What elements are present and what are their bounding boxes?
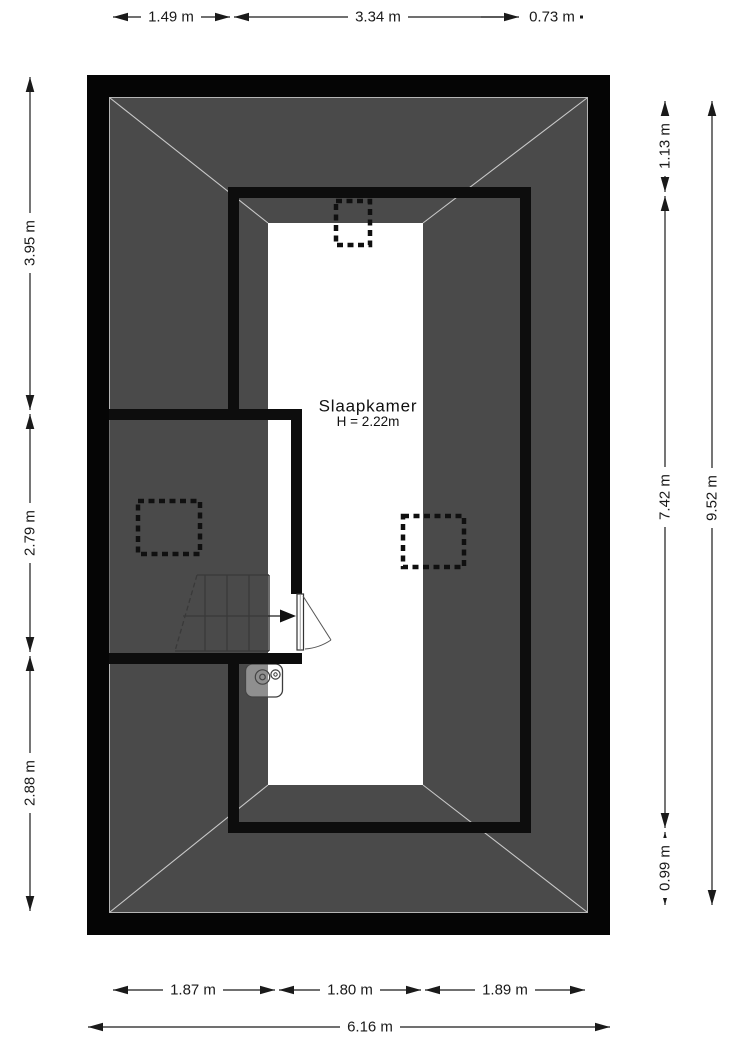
dimension-label: 1.80 m (327, 982, 373, 999)
dim-top-row: 1.49 m 3.34 m 0.73 m (113, 9, 583, 26)
dimension-arrow-icon (661, 813, 670, 828)
door-jamb (291, 585, 302, 594)
dim-left-column: 3.95 m 2.79 m 2.88 m (22, 77, 39, 911)
landing-wall-right (291, 420, 302, 585)
dimension-arrow-icon (26, 77, 35, 92)
floor-plan-page: Slaapkamer H = 2.22m 1.49 m 3.34 m 0.73 … (0, 0, 743, 1050)
dimension-tick (580, 16, 583, 19)
bedroom-wall-top (228, 187, 531, 198)
dimension-arrow-icon (570, 986, 585, 995)
boiler-pipe-icon (271, 670, 280, 679)
dimension-label: 3.95 m (22, 220, 39, 266)
room-name-label: Slaapkamer (319, 397, 418, 416)
dimension-label: 0.73 m (529, 9, 575, 26)
dim-bottom-rows: 1.87 m 1.80 m 1.89 m 6.16 m (88, 982, 610, 1036)
dimension-arrow-icon (215, 13, 230, 22)
dimension-arrow-icon (26, 414, 35, 429)
bedroom-wall-left-upper (228, 187, 239, 420)
dimension-label: 3.34 m (355, 9, 401, 26)
dimension-label: 1.49 m (148, 9, 194, 26)
dimension-arrow-icon (595, 1023, 610, 1032)
dimension-arrow-icon (661, 177, 670, 192)
bedroom-wall-bottom (228, 822, 531, 833)
dimension-label: 1.87 m (170, 982, 216, 999)
bedroom-wall-left-lower (228, 658, 239, 833)
dimension-arrow-icon (88, 1023, 103, 1032)
dimension-arrow-icon (26, 637, 35, 652)
bedroom-wall-right (520, 187, 531, 833)
dimension-label: 0.99 m (657, 845, 674, 891)
dimension-arrow-icon (661, 196, 670, 211)
dimension-label: 2.79 m (22, 510, 39, 556)
dim-right-columns: 1.13 m 7.42 m 0.99 m 9.52 m (657, 101, 721, 905)
dimension-arrow-icon (406, 986, 421, 995)
dimension-label: 7.42 m (657, 474, 674, 520)
dimension-label: 1.13 m (657, 123, 674, 169)
dimension-arrow-icon (504, 13, 519, 22)
room-height-label: H = 2.22m (337, 414, 400, 429)
landing-wall-bottom (109, 653, 302, 664)
dimension-arrow-icon (26, 395, 35, 410)
dimension-arrow-icon (708, 101, 717, 116)
landing-wall-top (109, 409, 302, 420)
dimension-arrow-icon (661, 101, 670, 116)
roof-slope-overlay (239, 664, 268, 702)
floor-plan: Slaapkamer H = 2.22m 1.49 m 3.34 m 0.73 … (0, 0, 743, 1050)
dimension-arrow-icon (279, 986, 294, 995)
dimension-arrow-icon (260, 986, 275, 995)
dimension-label: 9.52 m (704, 475, 721, 521)
dimension-arrow-icon (113, 13, 128, 22)
dimension-arrow-icon (234, 13, 249, 22)
dimension-label: 6.16 m (347, 1019, 393, 1036)
roof-slope-overlay (109, 420, 268, 653)
dimension-arrow-icon (425, 986, 440, 995)
dimension-arrow-icon (26, 896, 35, 911)
dimension-label: 1.89 m (482, 982, 528, 999)
dimension-arrow-icon (26, 656, 35, 671)
dimension-arrow-icon (113, 986, 128, 995)
dimension-label: 2.88 m (22, 760, 39, 806)
dimension-arrow-icon (708, 890, 717, 905)
